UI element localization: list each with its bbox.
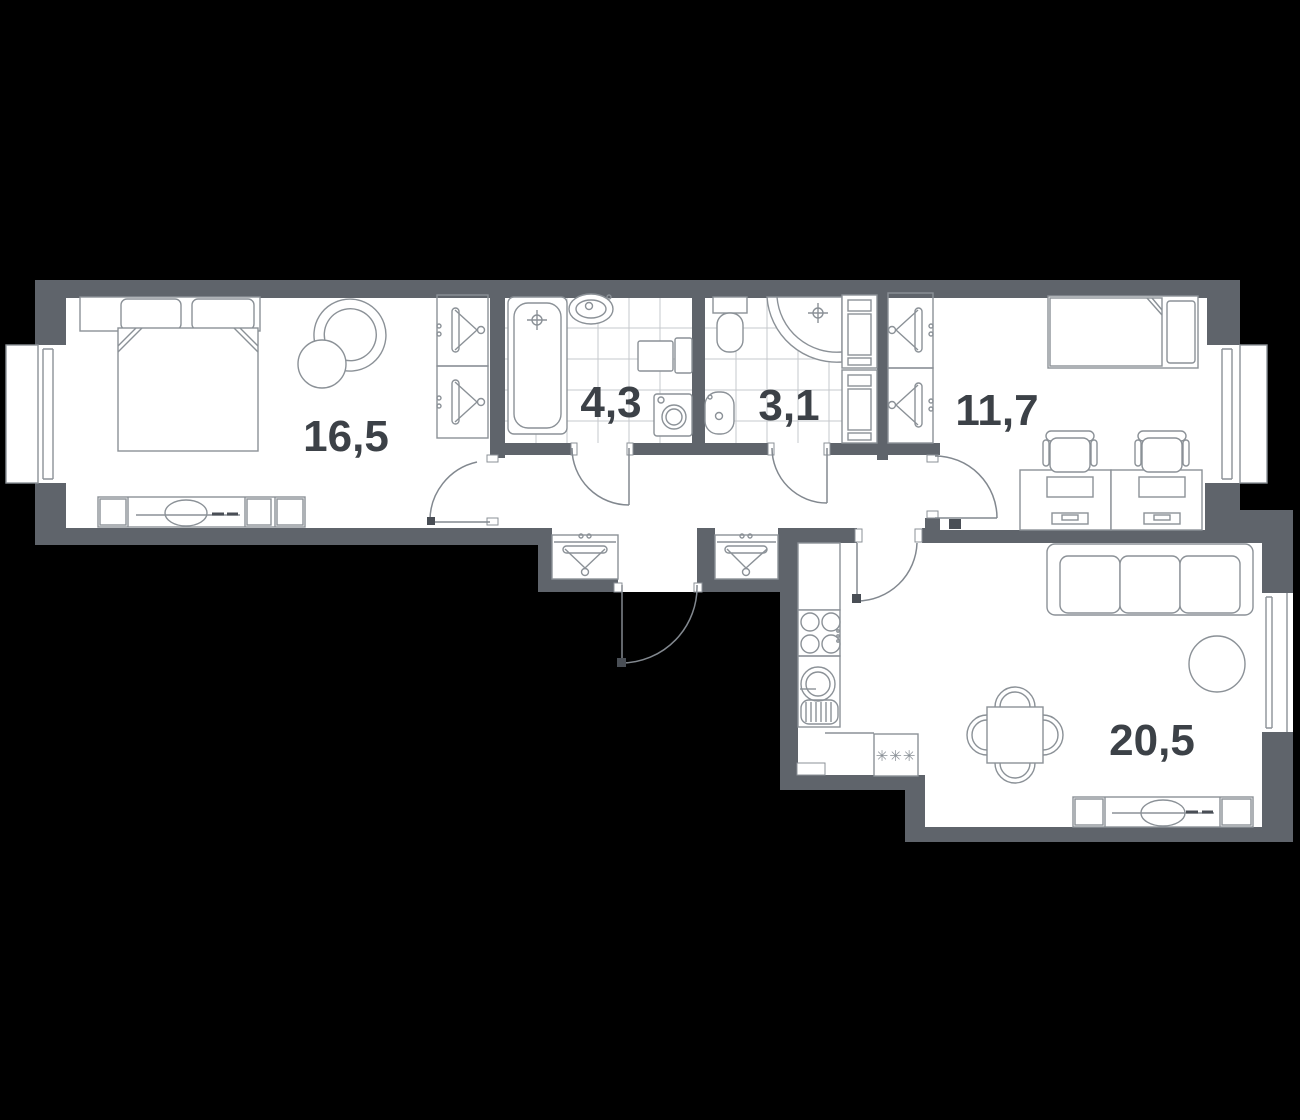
balcony-slab [6, 345, 38, 483]
area-label-kitchen-living: 20,5 [1109, 716, 1195, 765]
office-chair-1 [1043, 431, 1097, 472]
area-label-bathroom: 4,3 [580, 378, 641, 427]
bedroom-tv-console [98, 497, 305, 527]
dishwasher-cabinet: ✳✳✳ [874, 734, 918, 776]
floor-plan-canvas: 16,5 4,3 [0, 0, 1300, 1120]
wall-niche [797, 763, 825, 775]
area-label-bedroom-2: 11,7 [955, 386, 1038, 435]
area-label-toilet: 3,1 [758, 381, 819, 430]
water-heater [638, 338, 692, 373]
appliance-marker: ✳✳✳ [876, 747, 917, 765]
office-chair-2 [1135, 431, 1189, 472]
area-label-bedroom: 16,5 [303, 412, 389, 461]
balcony-slab [1240, 345, 1267, 483]
ottoman [298, 340, 346, 388]
toilet-bowl [713, 297, 747, 352]
washing-machine [654, 394, 692, 436]
side-table [1189, 636, 1245, 692]
stove [798, 610, 840, 656]
dining-table [987, 707, 1043, 763]
bathtub [508, 297, 567, 434]
sofa [1047, 544, 1253, 615]
desk-1 [1020, 470, 1111, 530]
desk-2 [1111, 470, 1202, 530]
bathroom-sink [569, 294, 613, 324]
single-bed [1048, 296, 1198, 368]
living-tv-console [1073, 797, 1253, 827]
tv-icon [165, 500, 207, 526]
entrance-door [614, 583, 702, 667]
bidet [705, 392, 734, 434]
floor-plan: 16,5 4,3 [0, 0, 1300, 1120]
